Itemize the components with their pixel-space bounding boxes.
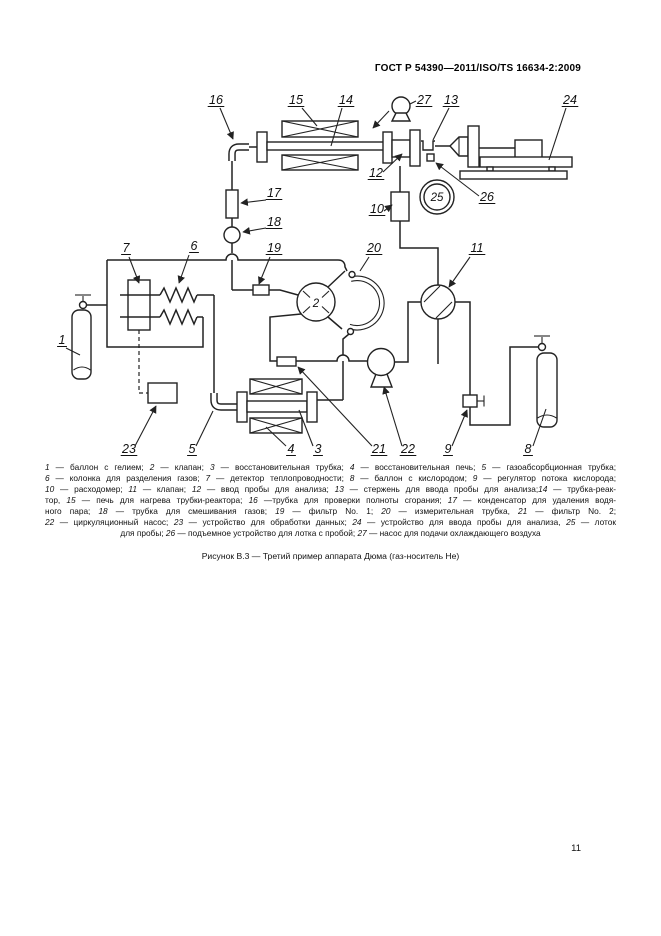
diagram-label-13: 13 [444,93,458,107]
diagram-label-14: 14 [339,93,353,107]
diagram-label-26: 26 [479,190,494,204]
diagram-label-1: 1 [59,333,66,347]
measuring-tube-20 [348,272,385,335]
helium-cylinder-1 [72,295,91,379]
diagram-label-8: 8 [525,442,532,456]
diagram-label-16: 16 [209,93,223,107]
diagram-label-18: 18 [267,215,281,229]
diagram-label-15: 15 [289,93,303,107]
diagram-label-7: 7 [123,241,131,255]
flowmeter-10 [391,192,409,221]
legend-line: тор, 15 — печь для нагрева трубки-реакто… [45,495,616,506]
diagram-label-4: 4 [288,442,295,456]
diagram-label-6: 6 [191,239,198,253]
circulation-pump-22 [368,349,395,388]
diagram-label-3: 3 [315,442,322,456]
legend-line: 22 — циркуляционный насос; 23 — устройст… [45,517,616,528]
filter-21 [277,357,296,366]
figure-legend: 1 — баллон с гелием; 2 — клапан; 3 — вос… [45,462,616,539]
valve-11 [421,285,455,319]
diagram-label-25: 25 [430,192,444,204]
condenser-17 [226,190,238,218]
oxygen-cylinder-8 [534,336,557,427]
cooling-air-pump-27 [373,97,416,128]
legend-line: ного пара; 18 — трубка для смешивания га… [45,506,616,517]
diagram-label-17: 17 [267,186,282,200]
diagram-label-23: 23 [121,442,136,456]
diagram-label-27: 27 [416,93,432,107]
gas-mixing-tube-18 [224,227,240,243]
sample-inlet-12 [392,130,420,166]
legend-line: 1 — баллон с гелием; 2 — клапан; 3 — вос… [45,462,616,473]
legend-line: 10 — расходомер; 11 — клапан; 12 — ввод … [45,484,616,495]
diagram-label-21: 21 [371,442,386,456]
elbow-16 [232,147,249,161]
diagram-label-5: 5 [189,442,196,456]
gas-absorption-elbow-5 [214,393,237,407]
lifting-device-26 [427,154,434,161]
legend-line: для пробы; 26 — подъемное устройство для… [45,528,616,539]
sample-rod-13 [421,141,435,150]
sample-introduction-device-24 [450,126,572,179]
page-number: 11 [571,843,581,854]
diagram-label-12: 12 [369,166,383,180]
diagram-label-19: 19 [267,241,281,255]
figure-caption: Рисунок В.3 — Третий пример аппарата Дюм… [0,551,661,561]
diagram-label-11: 11 [471,241,484,255]
diagram-label-10: 10 [370,202,384,216]
thermal-conductivity-detector-7 [128,280,150,330]
diagram-label-2: 2 [312,298,320,310]
data-processor-23 [139,330,177,403]
diagram-label-9: 9 [445,442,452,456]
diagram-label-22: 22 [400,442,415,456]
diagram-label-20: 20 [366,241,381,255]
oxygen-regulator-9 [463,395,484,407]
diagram-label-24: 24 [562,93,577,107]
filter-19 [253,285,269,295]
separation-column-6 [160,288,197,324]
document-page: ГОСТ Р 54390—2011/ISO/TS 16634-2:2009 [0,0,661,936]
legend-line: 6 — колонка для разделения газов; 7 — де… [45,473,616,484]
